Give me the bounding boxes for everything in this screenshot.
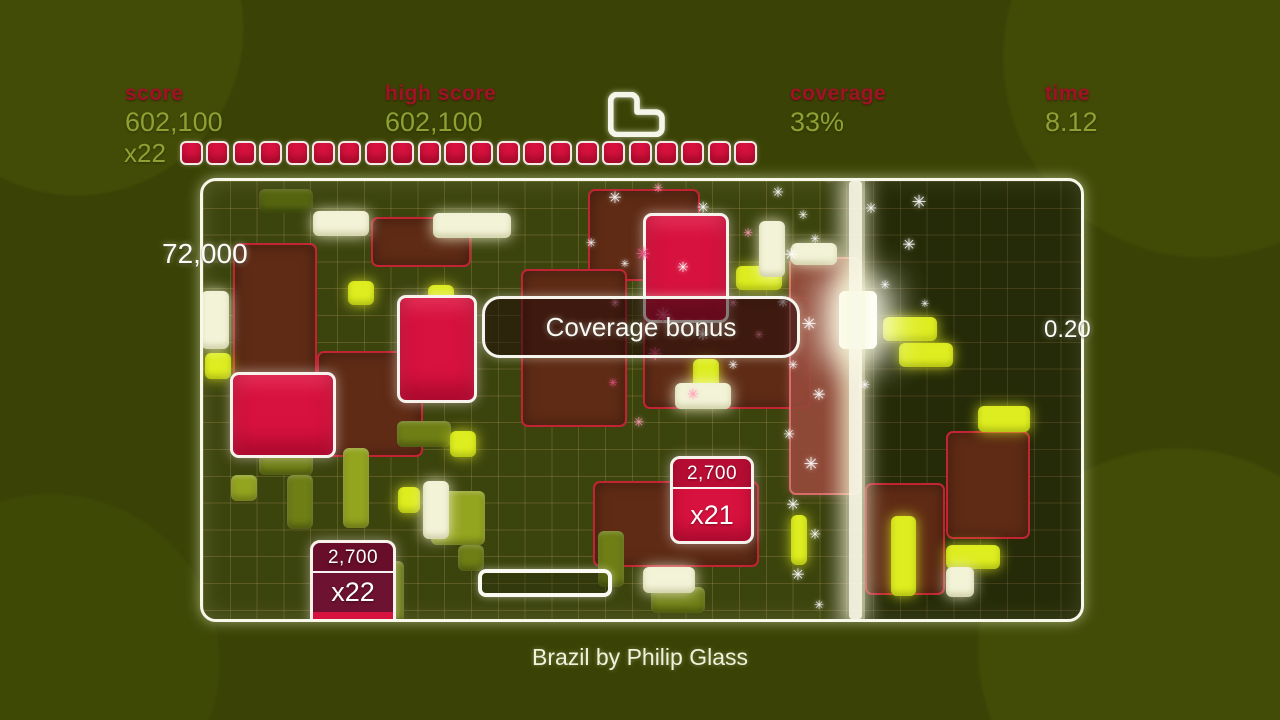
multiplier-segment [708,141,731,165]
score-stat: score 602,100 [125,82,223,138]
multiplier-segment [681,141,704,165]
multiplier-segment [549,141,572,165]
multiplier-segment [655,141,678,165]
coverage-bonus-banner: Coverage bonus [482,296,800,358]
block-yellow [205,353,231,379]
block-yellow [348,281,374,305]
multiplier-segment [576,141,599,165]
score-label: score [125,82,223,106]
multiplier-segment [444,141,467,165]
scored-quad: 2,700x21 [670,456,754,544]
coverage-stat: coverage 33% [790,82,886,138]
block-cream [946,567,974,597]
multiplier-segment [497,141,520,165]
block-yellow [883,317,937,341]
block-olive-light [231,475,257,501]
block-olive-dark [259,189,313,213]
block-cream [433,213,511,238]
multiplier-segment [734,141,757,165]
block-cream [643,567,695,593]
block-yellow [946,545,1000,569]
quad-score-label: 2,700 [313,543,393,573]
quad-score-label: 2,700 [673,459,751,489]
block-cream [423,481,449,539]
playfield[interactable]: 2,700x212,700x22 ✳✳✳✳✳✳✳✳✳✳✳✳✳✳✳✳✳✳✳✳✳✳✳… [200,178,1084,622]
block-red [397,295,477,403]
multiplier-segment [629,141,652,165]
block-cream [759,221,785,277]
multiplier-segment [602,141,625,165]
block-olive [397,421,451,447]
coverage-value: 33% [790,107,886,138]
blocks-layer: 2,700x212,700x22 [203,181,1081,619]
multiplier-segment [418,141,441,165]
score-value: 602,100 [125,107,223,138]
block-yellow [891,516,916,596]
multiplier-bar [180,141,757,165]
bonus-popup: 0.20 [1044,316,1091,344]
beamline [849,181,862,619]
block-cream [675,383,731,409]
placement-cursor[interactable] [478,569,612,597]
scored-quad: 2,700x22 [310,540,396,622]
block-yellow [899,343,953,367]
multiplier-segment [206,141,229,165]
block-olive [458,545,484,571]
block-yellow [398,487,420,513]
block-olive [287,475,313,529]
multiplier-segment [312,141,335,165]
multiplier-segment [365,141,388,165]
multiplier-segment [259,141,282,165]
multiplier-segment [286,141,309,165]
high-score-value: 602,100 [385,107,496,138]
block-yellow [791,515,807,565]
next-piece-icon [608,92,666,137]
time-value: 8.12 [1045,107,1098,138]
block-maroon [946,431,1030,539]
quad-strip [313,612,393,622]
coverage-label: coverage [790,82,886,106]
quad-multiplier-label: x21 [690,489,734,541]
high-score-label: high score [385,82,496,106]
multiplier-segment [523,141,546,165]
multiplier-segment [233,141,256,165]
block-cream [201,291,229,349]
multiplier-segment [391,141,414,165]
multiplier-segment [180,141,203,165]
block-yellow [978,406,1030,432]
block-red [230,372,336,458]
multiplier-segment [470,141,493,165]
time-stat: time 8.12 [1045,82,1098,138]
multiplier-segment [338,141,361,165]
time-label: time [1045,82,1098,106]
multiplier-label: x22 [124,138,166,169]
high-score-stat: high score 602,100 [385,82,496,138]
quad-multiplier-label: x22 [331,573,375,612]
score-popup: 72,000 [162,238,248,270]
track-title: Brazil by Philip Glass [0,644,1280,671]
block-olive-light [343,448,369,528]
block-yellow [450,431,476,457]
block-cream [313,211,369,236]
